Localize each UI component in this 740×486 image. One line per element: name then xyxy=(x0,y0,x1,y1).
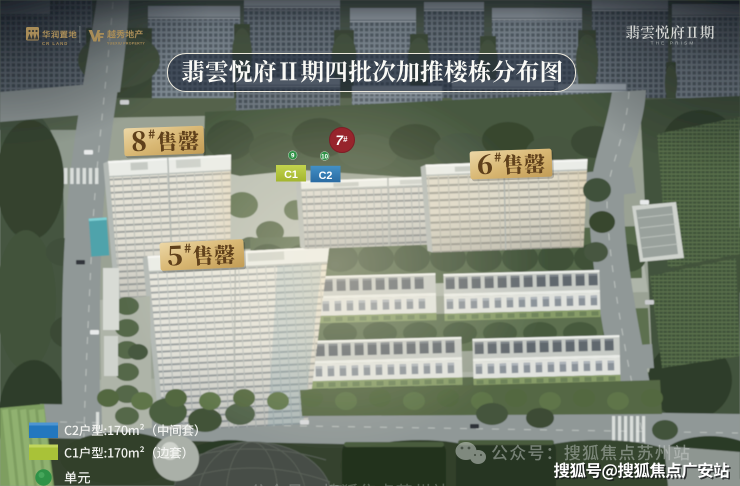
svg-text:C2: C2 xyxy=(319,170,333,182)
svg-text:9: 9 xyxy=(291,153,295,160)
svg-text:C1: C1 xyxy=(284,169,298,181)
svg-text:10: 10 xyxy=(321,153,328,160)
svg-text:CR LAND: CR LAND xyxy=(42,41,68,46)
svg-text:THE PRISM: THE PRISM xyxy=(651,41,696,46)
svg-text:YUEXIU PROPERTY: YUEXIU PROPERTY xyxy=(107,42,145,46)
